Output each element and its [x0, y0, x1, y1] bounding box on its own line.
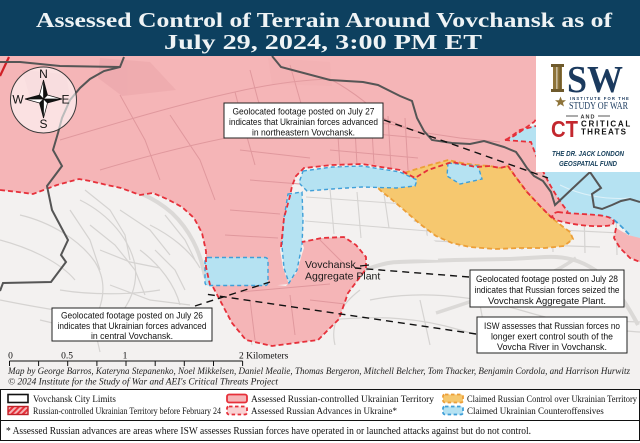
svg-text:THE DR. JACK LONDON: THE DR. JACK LONDON: [552, 149, 624, 158]
svg-text:Geolocated footage posted on J: Geolocated footage posted on July 27: [233, 107, 375, 118]
svg-text:Assessed Control of Terrain Ar: Assessed Control of Terrain Around Vovch…: [36, 8, 613, 32]
svg-text:GEOSPATIAL FUND: GEOSPATIAL FUND: [559, 159, 617, 168]
svg-text:Vovchansk Aggregate Plant.: Vovchansk Aggregate Plant.: [488, 296, 606, 307]
svg-text:N: N: [39, 67, 48, 81]
svg-text:Claimed Russian Control over U: Claimed Russian Control over Ukrainian T…: [467, 394, 637, 404]
svg-text:W: W: [12, 93, 24, 107]
svg-text:0.5: 0.5: [61, 352, 73, 362]
svg-text:Vovcha River in Vovchansk.: Vovcha River in Vovchansk.: [497, 342, 607, 353]
svg-text:Russian-controlled Ukrainian T: Russian-controlled Ukrainian Territory b…: [33, 406, 221, 416]
svg-text:1: 1: [123, 352, 128, 362]
svg-text:Vovchansk: Vovchansk: [305, 259, 357, 271]
svg-text:S: S: [39, 117, 47, 131]
svg-text:STUDY OF WAR: STUDY OF WAR: [569, 101, 628, 112]
svg-text:Aggregate Plant: Aggregate Plant: [305, 271, 380, 283]
svg-text:2 Kilometers: 2 Kilometers: [239, 352, 289, 362]
svg-text:in northeastern Vovchansk.: in northeastern Vovchansk.: [252, 128, 355, 139]
svg-text:CT: CT: [551, 116, 578, 142]
svg-text:longer exert control south of: longer exert control south of the: [491, 332, 613, 343]
svg-text:Claimed Ukrainian Counteroffen: Claimed Ukrainian Counteroffensives: [467, 406, 604, 416]
svg-text:indicates that Russian forces: indicates that Russian forces seized the: [475, 285, 620, 296]
svg-text:THREATS: THREATS: [581, 128, 627, 137]
svg-text:Vovchansk City Limits: Vovchansk City Limits: [33, 394, 116, 404]
svg-text:indicates that Ukrainian force: indicates that Ukrainian forces advanced: [229, 117, 378, 128]
svg-text:ISW assesses that Russian forc: ISW assesses that Russian forces no: [484, 321, 620, 332]
svg-text:0: 0: [8, 352, 13, 362]
svg-text:SW: SW: [567, 59, 623, 101]
svg-text:E: E: [61, 93, 69, 107]
svg-text:Geolocated footage posted on J: Geolocated footage posted on July 28: [476, 274, 618, 285]
svg-text:in central Vovchansk.: in central Vovchansk.: [91, 331, 173, 342]
svg-text:Map by George Barros, Kateryna: Map by George Barros, Kateryna Stepanenk…: [7, 367, 630, 377]
svg-text:Geolocated footage posted on J: Geolocated footage posted on July 26: [61, 311, 203, 322]
svg-text:* Assessed Russian advances ar: * Assessed Russian advances are areas wh…: [6, 426, 531, 437]
svg-text:July 29, 2024, 3:00 PM ET: July 29, 2024, 3:00 PM ET: [164, 30, 482, 54]
svg-text:© 2024 Institute for the Study: © 2024 Institute for the Study of War an…: [8, 377, 278, 388]
svg-text:Assessed Russian Advances in U: Assessed Russian Advances in Ukraine*: [251, 406, 397, 416]
svg-text:Assessed Russian-controlled Uk: Assessed Russian-controlled Ukrainian Te…: [251, 394, 435, 404]
